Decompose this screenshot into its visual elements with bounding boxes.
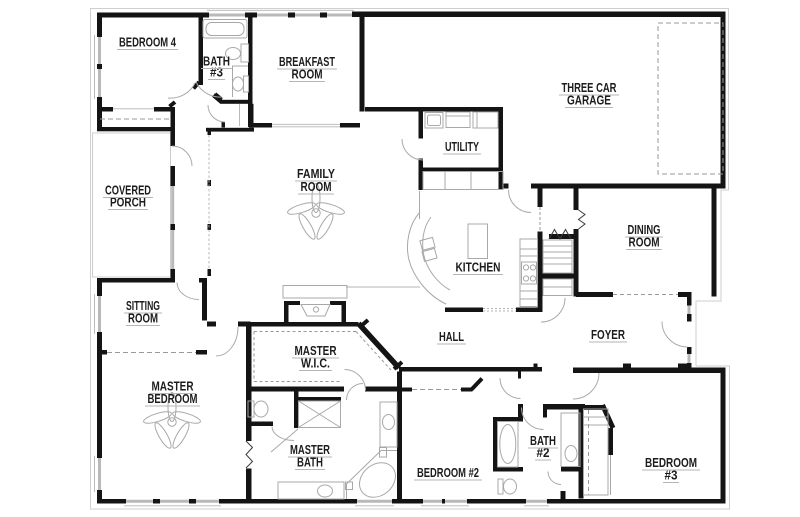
svg-text:UTILITY: UTILITY — [445, 139, 479, 154]
svg-text:FOYER: FOYER — [591, 327, 625, 342]
svg-text:PORCH: PORCH — [110, 195, 146, 210]
svg-text:#3: #3 — [210, 65, 223, 80]
svg-text:BEDROOM 4: BEDROOM 4 — [119, 35, 177, 50]
svg-text:BEDROOM #2: BEDROOM #2 — [417, 465, 479, 480]
svg-text:KITCHEN: KITCHEN — [456, 260, 501, 275]
svg-text:#2: #2 — [537, 445, 550, 460]
svg-text:HALL: HALL — [439, 329, 464, 344]
